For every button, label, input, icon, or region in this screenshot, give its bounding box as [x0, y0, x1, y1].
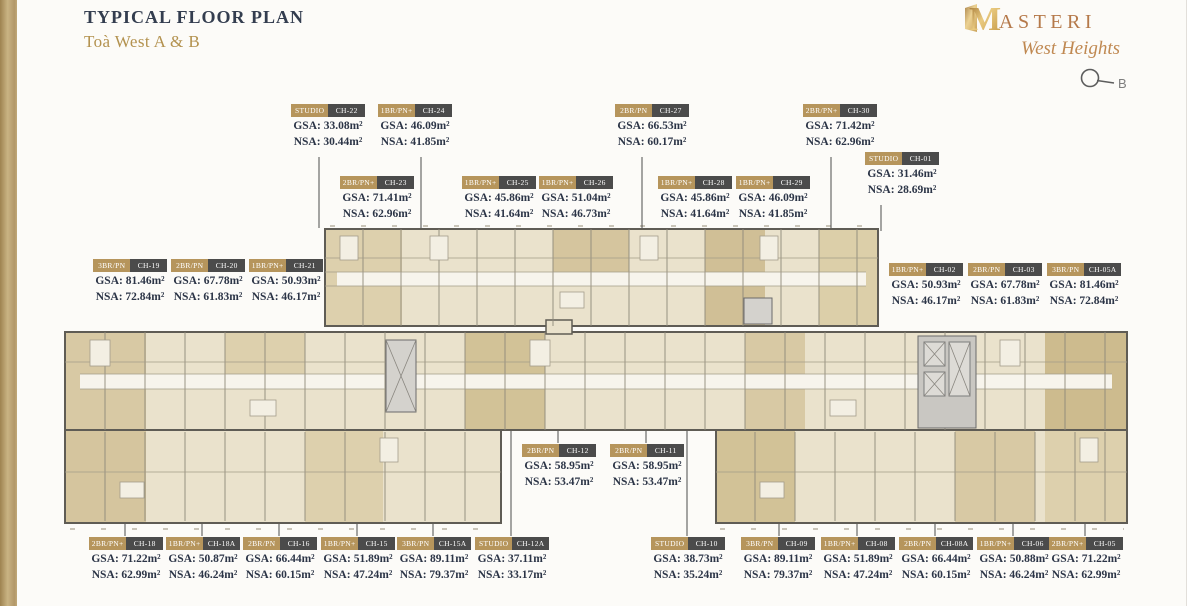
gsa-value: 45.86 — [691, 192, 717, 204]
gsa-value: 46.09 — [411, 120, 437, 132]
unit-label: 3BR/PNCH-05A GSA: 81.46m² NSA: 72.84m² — [1044, 263, 1124, 308]
unit-type-badge: STUDIO — [475, 537, 512, 550]
nsa-prefix: NSA: — [400, 569, 427, 581]
unit-type-badge: 1BR/PN+ — [658, 176, 695, 189]
unit-code-badge: CH-02 — [926, 263, 963, 276]
gsa-value: 81.46 — [1080, 279, 1106, 291]
nsa-value: 72.84 — [125, 291, 151, 303]
unit-gsa: GSA: 50.93m² — [886, 278, 966, 292]
gsa-prefix: GSA: — [617, 120, 644, 132]
area-unit: m² — [957, 569, 970, 581]
gsa-prefix: GSA: — [245, 553, 272, 565]
unit-gsa: GSA: 33.08m² — [288, 119, 368, 133]
area-unit: m² — [795, 192, 808, 204]
unit-code-badge: CH-05A — [1084, 263, 1121, 276]
gsa-prefix: GSA: — [891, 279, 918, 291]
nsa-value: 61.83 — [1000, 295, 1026, 307]
unit-gsa: GSA: 67.78m² — [168, 274, 248, 288]
nsa-value: 41.64 — [494, 208, 520, 220]
unit-tag: 1BR/PN+CH-15 — [321, 537, 395, 550]
unit-gsa: GSA: 71.22m² — [86, 552, 166, 566]
unit-nsa: NSA: 47.24m² — [318, 568, 398, 582]
unit-tag: 1BR/PN+CH-18A — [166, 537, 240, 550]
nsa-prefix: NSA: — [806, 136, 833, 148]
unit-gsa: GSA: 51.04m² — [536, 191, 616, 205]
unit-label: STUDIOCH-10 GSA: 38.73m² NSA: 35.24m² — [648, 537, 728, 582]
nsa-prefix: NSA: — [661, 208, 688, 220]
unit-nsa: NSA: 41.85m² — [375, 135, 455, 149]
gsa-prefix: GSA: — [323, 553, 350, 565]
unit-tag: 2BR/PNCH-03 — [968, 263, 1042, 276]
unit-type-badge: 2BR/PN+ — [803, 104, 840, 117]
unit-gsa: GSA: 45.86m² — [655, 191, 735, 205]
gsa-value: 38.73 — [684, 553, 710, 565]
gsa-value: 67.78 — [1001, 279, 1027, 291]
gsa-prefix: GSA: — [901, 553, 928, 565]
area-unit: m² — [597, 208, 610, 220]
area-unit: m² — [948, 279, 961, 291]
unit-type-badge: 2BR/PN+ — [340, 176, 377, 189]
area-unit: m² — [710, 553, 723, 565]
nsa-value: 28.69 — [897, 184, 923, 196]
gsa-prefix: GSA: — [1051, 553, 1078, 565]
unit-type-badge: 2BR/PN — [968, 263, 1005, 276]
unit-tag: 1BR/PN+CH-08 — [821, 537, 895, 550]
unit-tag: 1BR/PN+CH-02 — [889, 263, 963, 276]
nsa-prefix: NSA: — [246, 569, 273, 581]
unit-nsa: NSA: 46.17m² — [246, 290, 326, 304]
unit-tag: 3BR/PNCH-15A — [397, 537, 471, 550]
gsa-value: 51.89 — [354, 553, 380, 565]
unit-gsa: GSA: 66.44m² — [240, 552, 320, 566]
unit-tag: 2BR/PN+CH-30 — [803, 104, 877, 117]
area-unit: m² — [862, 120, 875, 132]
unit-code-badge: CH-22 — [328, 104, 365, 117]
gsa-value: 67.78 — [204, 275, 230, 287]
nsa-value: 60.15 — [275, 569, 301, 581]
nsa-prefix: NSA: — [618, 136, 645, 148]
nsa-value: 33.17 — [507, 569, 533, 581]
area-unit: m² — [1027, 279, 1040, 291]
unit-gsa: GSA: 89.11m² — [738, 552, 818, 566]
nsa-value: 41.85 — [410, 136, 436, 148]
unit-nsa: NSA: 60.17m² — [612, 135, 692, 149]
gsa-prefix: GSA: — [970, 279, 997, 291]
area-unit: m² — [302, 553, 315, 565]
unit-code-badge: CH-15 — [358, 537, 395, 550]
area-unit: m² — [1108, 553, 1121, 565]
gsa-prefix: GSA: — [478, 553, 505, 565]
unit-code-badge: CH-21 — [286, 259, 323, 272]
unit-gsa: GSA: 31.46m² — [862, 167, 942, 181]
unit-nsa: NSA: 47.24m² — [818, 568, 898, 582]
slide-right-edge — [1186, 0, 1200, 606]
nsa-value: 62.96 — [835, 136, 861, 148]
nsa-prefix: NSA: — [824, 569, 851, 581]
unit-nsa: NSA: 79.37m² — [394, 568, 474, 582]
unit-label: 3BR/PNCH-09 GSA: 89.11m² NSA: 79.37m² — [738, 537, 818, 582]
area-unit: m² — [225, 553, 238, 565]
nsa-prefix: NSA: — [381, 136, 408, 148]
unit-code-badge: CH-25 — [499, 176, 536, 189]
gsa-prefix: GSA: — [524, 460, 551, 472]
area-unit: m² — [861, 136, 874, 148]
gsa-value: 50.93 — [282, 275, 308, 287]
gsa-value: 51.89 — [854, 553, 880, 565]
unit-gsa: GSA: 67.78m² — [965, 278, 1045, 292]
gsa-value: 66.53 — [648, 120, 674, 132]
unit-gsa: GSA: 46.09m² — [375, 119, 455, 133]
nsa-value: 62.99 — [1081, 569, 1107, 581]
gsa-prefix: GSA: — [342, 192, 369, 204]
unit-gsa: GSA: 71.22m² — [1046, 552, 1126, 566]
unit-type-badge: STUDIO — [651, 537, 688, 550]
unit-type-badge: 2BR/PN — [522, 444, 559, 457]
nsa-value: 53.47 — [554, 476, 580, 488]
unit-type-badge: 3BR/PN — [1047, 263, 1084, 276]
unit-type-badge: STUDIO — [865, 152, 902, 165]
gsa-prefix: GSA: — [95, 275, 122, 287]
area-unit: m² — [350, 120, 363, 132]
nsa-prefix: NSA: — [892, 295, 919, 307]
area-unit: m² — [799, 553, 812, 565]
area-unit: m² — [379, 569, 392, 581]
unit-code-badge: CH-20 — [208, 259, 245, 272]
unit-nsa: NSA: 33.17m² — [472, 568, 552, 582]
unit-label: 2BR/PN+CH-23 GSA: 71.41m² NSA: 62.96m² — [337, 176, 417, 221]
unit-label: 2BR/PNCH-08A GSA: 66.44m² NSA: 60.15m² — [896, 537, 976, 582]
area-unit: m² — [398, 208, 411, 220]
gsa-value: 71.41 — [373, 192, 399, 204]
unit-nsa: NSA: 41.64m² — [459, 207, 539, 221]
area-unit: m² — [716, 208, 729, 220]
unit-code-badge: CH-01 — [902, 152, 939, 165]
unit-nsa: NSA: 72.84m² — [90, 290, 170, 304]
area-unit: m² — [349, 136, 362, 148]
gsa-prefix: GSA: — [653, 553, 680, 565]
unit-tag: 2BR/PNCH-08A — [899, 537, 973, 550]
unit-label: 1BR/PN+CH-25 GSA: 45.86m² NSA: 41.64m² — [459, 176, 539, 221]
nsa-prefix: NSA: — [868, 184, 895, 196]
gsa-prefix: GSA: — [612, 460, 639, 472]
nsa-prefix: NSA: — [744, 569, 771, 581]
nsa-value: 46.24 — [198, 569, 224, 581]
unit-tag: STUDIOCH-01 — [865, 152, 939, 165]
nsa-value: 61.83 — [203, 291, 229, 303]
gsa-value: 50.93 — [922, 279, 948, 291]
gsa-prefix: GSA: — [867, 168, 894, 180]
area-unit: m² — [224, 569, 237, 581]
unit-nsa: NSA: 30.44m² — [288, 135, 368, 149]
nsa-value: 35.24 — [683, 569, 709, 581]
area-unit: m² — [580, 476, 593, 488]
unit-tag: 2BR/PNCH-27 — [615, 104, 689, 117]
gsa-prefix: GSA: — [738, 192, 765, 204]
unit-label: 1BR/PN+CH-26 GSA: 51.04m² NSA: 46.73m² — [536, 176, 616, 221]
unit-label: 1BR/PN+CH-24 GSA: 46.09m² NSA: 41.85m² — [375, 104, 455, 149]
unit-label: 3BR/PNCH-19 GSA: 81.46m² NSA: 72.84m² — [90, 259, 170, 304]
nsa-prefix: NSA: — [1052, 569, 1079, 581]
unit-label: STUDIOCH-22 GSA: 33.08m² NSA: 30.44m² — [288, 104, 368, 149]
gsa-value: 81.46 — [126, 275, 152, 287]
area-unit: m² — [301, 569, 314, 581]
unit-type-badge: 2BR/PN — [610, 444, 647, 457]
unit-label: 1BR/PN+CH-28 GSA: 45.86m² NSA: 41.64m² — [655, 176, 735, 221]
unit-tag: 2BR/PNCH-12 — [522, 444, 596, 457]
nsa-value: 53.47 — [642, 476, 668, 488]
unit-nsa: NSA: 62.96m² — [337, 207, 417, 221]
gsa-value: 71.22 — [1082, 553, 1108, 565]
gsa-prefix: GSA: — [823, 553, 850, 565]
unit-code-badge: CH-15A — [434, 537, 471, 550]
area-unit: m² — [674, 120, 687, 132]
unit-code-badge: CH-05 — [1086, 537, 1123, 550]
gsa-prefix: GSA: — [464, 192, 491, 204]
unit-type-badge: 1BR/PN+ — [249, 259, 286, 272]
unit-label: 2BR/PNCH-16 GSA: 66.44m² NSA: 60.15m² — [240, 537, 320, 582]
area-unit: m² — [399, 192, 412, 204]
unit-gsa: GSA: 81.46m² — [1044, 278, 1124, 292]
area-unit: m² — [1107, 569, 1120, 581]
unit-tag: STUDIOCH-10 — [651, 537, 725, 550]
unit-nsa: NSA: 60.15m² — [240, 568, 320, 582]
unit-label: 1BR/PN+CH-18A GSA: 50.87m² NSA: 46.24m² — [163, 537, 243, 582]
unit-tag: STUDIOCH-12A — [475, 537, 549, 550]
unit-type-badge: 3BR/PN — [93, 259, 130, 272]
unit-gsa: GSA: 66.44m² — [896, 552, 976, 566]
unit-nsa: NSA: 35.24m² — [648, 568, 728, 582]
unit-gsa: GSA: 50.87m² — [163, 552, 243, 566]
unit-tag: 2BR/PNCH-11 — [610, 444, 684, 457]
gsa-prefix: GSA: — [1049, 279, 1076, 291]
unit-type-badge: 3BR/PN — [741, 537, 778, 550]
gsa-prefix: GSA: — [660, 192, 687, 204]
nsa-prefix: NSA: — [324, 569, 351, 581]
area-unit: m² — [598, 192, 611, 204]
unit-gsa: GSA: 81.46m² — [90, 274, 170, 288]
nsa-prefix: NSA: — [971, 295, 998, 307]
gsa-value: 31.46 — [898, 168, 924, 180]
gsa-value: 33.08 — [324, 120, 350, 132]
unit-label: 2BR/PNCH-11 GSA: 58.95m² NSA: 53.47m² — [607, 444, 687, 489]
unit-nsa: NSA: 53.47m² — [519, 475, 599, 489]
nsa-prefix: NSA: — [465, 208, 492, 220]
unit-label: 1BR/PN+CH-06 GSA: 50.88m² NSA: 46.24m² — [974, 537, 1054, 582]
unit-code-badge: CH-18A — [203, 537, 240, 550]
gsa-value: 37.11 — [508, 553, 533, 565]
unit-code-badge: CH-12 — [559, 444, 596, 457]
nsa-value: 41.85 — [768, 208, 794, 220]
unit-code-badge: CH-16 — [280, 537, 317, 550]
unit-label: 2BR/PN+CH-30 GSA: 71.42m² NSA: 62.96m² — [800, 104, 880, 149]
unit-code-badge: CH-30 — [840, 104, 877, 117]
unit-code-badge: CH-11 — [647, 444, 684, 457]
unit-tag: 1BR/PN+CH-21 — [249, 259, 323, 272]
unit-nsa: NSA: 46.24m² — [974, 568, 1054, 582]
area-unit: m² — [1106, 279, 1119, 291]
gsa-value: 45.86 — [495, 192, 521, 204]
gsa-value: 46.09 — [769, 192, 795, 204]
unit-label: STUDIOCH-01 GSA: 31.46m² NSA: 28.69m² — [862, 152, 942, 197]
unit-code-badge: CH-12A — [512, 537, 549, 550]
unit-label: 2BR/PNCH-12 GSA: 58.95m² NSA: 53.47m² — [519, 444, 599, 489]
gsa-prefix: GSA: — [541, 192, 568, 204]
unit-type-badge: 1BR/PN+ — [889, 263, 926, 276]
unit-tag: 3BR/PNCH-05A — [1047, 263, 1121, 276]
unit-code-badge: CH-08A — [936, 537, 973, 550]
area-unit: m² — [520, 208, 533, 220]
nsa-value: 46.73 — [571, 208, 597, 220]
nsa-value: 60.15 — [931, 569, 957, 581]
unit-type-badge: 1BR/PN+ — [321, 537, 358, 550]
unit-tag: 1BR/PN+CH-26 — [539, 176, 613, 189]
unit-nsa: NSA: 72.84m² — [1044, 294, 1124, 308]
unit-tag: 2BR/PN+CH-18 — [89, 537, 163, 550]
area-unit: m² — [958, 553, 971, 565]
gsa-prefix: GSA: — [168, 553, 195, 565]
unit-label: 2BR/PNCH-20 GSA: 67.78m² NSA: 61.83m² — [168, 259, 248, 304]
nsa-prefix: NSA: — [294, 136, 321, 148]
gsa-prefix: GSA: — [173, 275, 200, 287]
unit-gsa: GSA: 45.86m² — [459, 191, 539, 205]
unit-code-badge: CH-27 — [652, 104, 689, 117]
area-unit: m² — [533, 553, 546, 565]
unit-type-badge: 1BR/PN+ — [378, 104, 415, 117]
nsa-prefix: NSA: — [542, 208, 569, 220]
area-unit: m² — [380, 553, 393, 565]
area-unit: m² — [1026, 295, 1039, 307]
unit-code-badge: CH-24 — [415, 104, 452, 117]
unit-type-badge: 2BR/PN — [615, 104, 652, 117]
unit-label: 2BR/PN+CH-05 GSA: 71.22m² NSA: 62.99m² — [1046, 537, 1126, 582]
unit-code-badge: CH-23 — [377, 176, 414, 189]
unit-nsa: NSA: 53.47m² — [607, 475, 687, 489]
nsa-prefix: NSA: — [613, 476, 640, 488]
unit-label: 2BR/PNCH-27 GSA: 66.53m² NSA: 60.17m² — [612, 104, 692, 149]
gsa-value: 58.95 — [643, 460, 669, 472]
nsa-value: 60.17 — [647, 136, 673, 148]
unit-gsa: GSA: 58.95m² — [519, 459, 599, 473]
nsa-value: 41.64 — [690, 208, 716, 220]
nsa-prefix: NSA: — [739, 208, 766, 220]
unit-label: 1BR/PN+CH-21 GSA: 50.93m² NSA: 46.17m² — [246, 259, 326, 304]
unit-type-badge: 1BR/PN+ — [166, 537, 203, 550]
unit-code-badge: CH-09 — [778, 537, 815, 550]
unit-nsa: NSA: 41.85m² — [733, 207, 813, 221]
unit-type-badge: 2BR/PN — [899, 537, 936, 550]
nsa-value: 72.84 — [1079, 295, 1105, 307]
unit-gsa: GSA: 38.73m² — [648, 552, 728, 566]
area-unit: m² — [947, 295, 960, 307]
area-unit: m² — [794, 208, 807, 220]
area-unit: m² — [581, 460, 594, 472]
unit-nsa: NSA: 62.96m² — [800, 135, 880, 149]
unit-gsa: GSA: 58.95m² — [607, 459, 687, 473]
nsa-value: 46.17 — [921, 295, 947, 307]
unit-label: 1BR/PN+CH-29 GSA: 46.09m² NSA: 41.85m² — [733, 176, 813, 221]
unit-label: 1BR/PN+CH-08 GSA: 51.89m² NSA: 47.24m² — [818, 537, 898, 582]
area-unit: m² — [436, 136, 449, 148]
nsa-prefix: NSA: — [92, 569, 119, 581]
area-unit: m² — [455, 553, 468, 565]
unit-tag: 3BR/PNCH-19 — [93, 259, 167, 272]
unit-tag: 1BR/PN+CH-28 — [658, 176, 732, 189]
area-unit: m² — [673, 136, 686, 148]
nsa-value: 46.17 — [281, 291, 307, 303]
gsa-value: 50.87 — [199, 553, 225, 565]
unit-code-badge: CH-19 — [130, 259, 167, 272]
nsa-value: 30.44 — [323, 136, 349, 148]
nsa-prefix: NSA: — [252, 291, 279, 303]
unit-type-badge: 2BR/PN — [171, 259, 208, 272]
unit-nsa: NSA: 62.99m² — [86, 568, 166, 582]
gsa-value: 66.44 — [276, 553, 302, 565]
nsa-prefix: NSA: — [343, 208, 370, 220]
area-unit: m² — [147, 569, 160, 581]
gsa-value: 89.11 — [774, 553, 799, 565]
nsa-value: 46.24 — [1009, 569, 1035, 581]
area-unit: m² — [533, 569, 546, 581]
unit-tag: 2BR/PNCH-20 — [171, 259, 245, 272]
unit-tag: 1BR/PN+CH-25 — [462, 176, 536, 189]
unit-label: 1BR/PN+CH-15 GSA: 51.89m² NSA: 47.24m² — [318, 537, 398, 582]
unit-tag: 1BR/PN+CH-29 — [736, 176, 810, 189]
area-unit: m² — [880, 553, 893, 565]
gsa-prefix: GSA: — [293, 120, 320, 132]
nsa-value: 79.37 — [429, 569, 455, 581]
gsa-prefix: GSA: — [91, 553, 118, 565]
area-unit: m² — [717, 192, 730, 204]
area-unit: m² — [455, 569, 468, 581]
unit-nsa: NSA: 46.24m² — [163, 568, 243, 582]
nsa-prefix: NSA: — [902, 569, 929, 581]
unit-tag: 3BR/PNCH-09 — [741, 537, 815, 550]
gsa-value: 50.88 — [1010, 553, 1036, 565]
area-unit: m² — [230, 275, 243, 287]
unit-type-badge: 1BR/PN+ — [977, 537, 1014, 550]
nsa-prefix: NSA: — [174, 291, 201, 303]
unit-type-badge: 1BR/PN+ — [462, 176, 499, 189]
nsa-value: 47.24 — [853, 569, 879, 581]
nsa-prefix: NSA: — [654, 569, 681, 581]
gsa-value: 89.11 — [430, 553, 455, 565]
gsa-prefix: GSA: — [744, 553, 771, 565]
unit-tag: 1BR/PN+CH-24 — [378, 104, 452, 117]
nsa-value: 47.24 — [353, 569, 379, 581]
gsa-value: 66.44 — [932, 553, 958, 565]
unit-gsa: GSA: 71.42m² — [800, 119, 880, 133]
unit-nsa: NSA: 60.15m² — [896, 568, 976, 582]
unit-label: STUDIOCH-12A GSA: 37.11m² NSA: 33.17m² — [472, 537, 552, 582]
unit-nsa: NSA: 62.99m² — [1046, 568, 1126, 582]
unit-nsa: NSA: 28.69m² — [862, 183, 942, 197]
unit-gsa: GSA: 51.89m² — [318, 552, 398, 566]
unit-nsa: NSA: 61.83m² — [965, 294, 1045, 308]
unit-tag: 1BR/PN+CH-06 — [977, 537, 1051, 550]
area-unit: m² — [308, 275, 321, 287]
unit-code-badge: CH-28 — [695, 176, 732, 189]
unit-nsa: NSA: 61.83m² — [168, 290, 248, 304]
unit-gsa: GSA: 71.41m² — [337, 191, 417, 205]
gsa-prefix: GSA: — [251, 275, 278, 287]
unit-code-badge: CH-03 — [1005, 263, 1042, 276]
unit-nsa: NSA: 79.37m² — [738, 568, 818, 582]
unit-type-badge: 1BR/PN+ — [736, 176, 773, 189]
unit-code-badge: CH-10 — [688, 537, 725, 550]
unit-gsa: GSA: 89.11m² — [394, 552, 474, 566]
unit-gsa: GSA: 46.09m² — [733, 191, 813, 205]
unit-code-badge: CH-26 — [576, 176, 613, 189]
